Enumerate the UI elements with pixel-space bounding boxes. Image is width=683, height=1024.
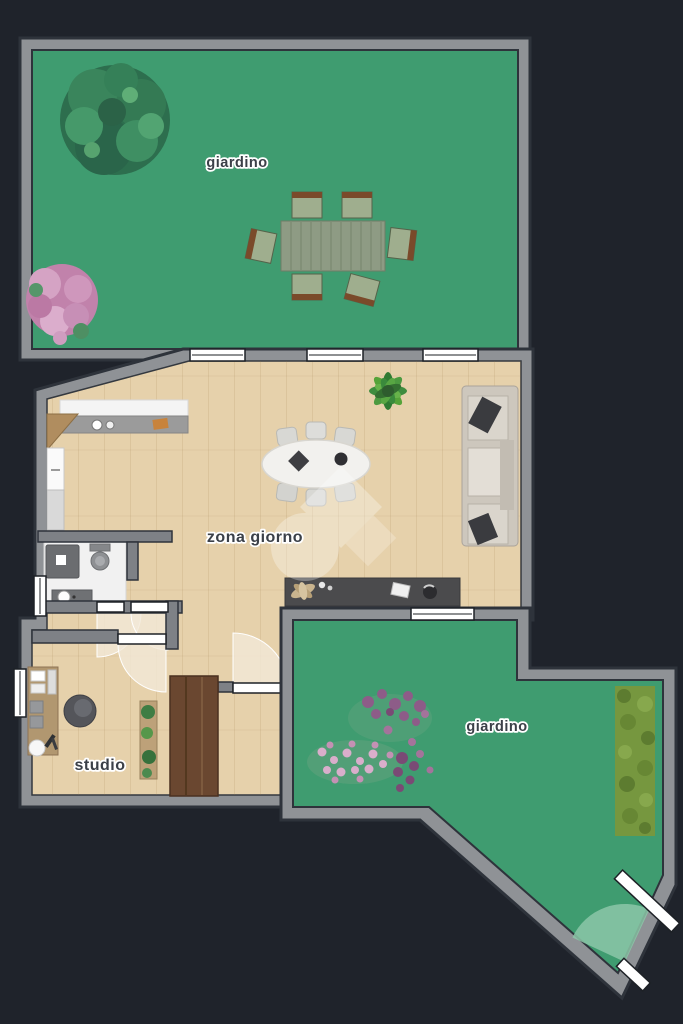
- outdoor-chair: [292, 192, 322, 218]
- outdoor-chair: [245, 229, 277, 264]
- garden-top: giardino: [20, 38, 530, 360]
- window: [190, 349, 245, 361]
- wall-segment: [218, 682, 233, 692]
- houseplant-icon: [369, 372, 407, 410]
- studio-label: studio: [75, 757, 126, 774]
- garden-bottom-label: giardino: [466, 719, 527, 735]
- floorplan-svg: giardino: [0, 0, 683, 1024]
- sink-icon: [92, 420, 102, 430]
- window: [307, 349, 363, 361]
- outdoor-chair: [387, 228, 416, 261]
- outdoor-chair: [342, 192, 372, 218]
- desk-chair: [30, 701, 43, 713]
- window: [423, 349, 478, 361]
- garden-top-label: giardino: [206, 155, 267, 171]
- stool-icon: [29, 740, 45, 756]
- sofa-shelf-unit: [462, 386, 518, 546]
- wall-segment: [127, 542, 138, 580]
- wall-segment: [32, 630, 118, 643]
- desk-chair: [30, 716, 43, 728]
- bathroom: [44, 541, 126, 603]
- sideboard: [285, 578, 460, 606]
- door: [131, 602, 168, 612]
- window: [14, 669, 26, 717]
- living-area-label: zona giorno: [207, 529, 303, 546]
- kitchen-tall-unit: [47, 490, 64, 530]
- wall-segment: [38, 531, 172, 542]
- wardrobe: [170, 676, 218, 796]
- paper-icon: [31, 684, 45, 693]
- floorplan-canvas: giardino: [0, 0, 683, 1024]
- shower-drain: [56, 555, 66, 565]
- kitchen-counter-top: [60, 400, 188, 416]
- door: [97, 602, 124, 612]
- window: [411, 608, 474, 620]
- outdoor-table: [281, 221, 385, 271]
- paper-icon: [31, 671, 45, 681]
- outdoor-chair: [292, 274, 322, 300]
- toilet-icon: [90, 544, 110, 570]
- hedge: [615, 686, 655, 836]
- window: [34, 576, 46, 616]
- door: [118, 634, 166, 644]
- cutting-board-icon: [152, 418, 168, 430]
- table-bowl-icon: [335, 453, 348, 466]
- laptop-icon: [48, 670, 56, 694]
- kitchen-counter: [60, 416, 188, 433]
- plant-shelf: [140, 701, 157, 779]
- sink-icon: [106, 421, 114, 429]
